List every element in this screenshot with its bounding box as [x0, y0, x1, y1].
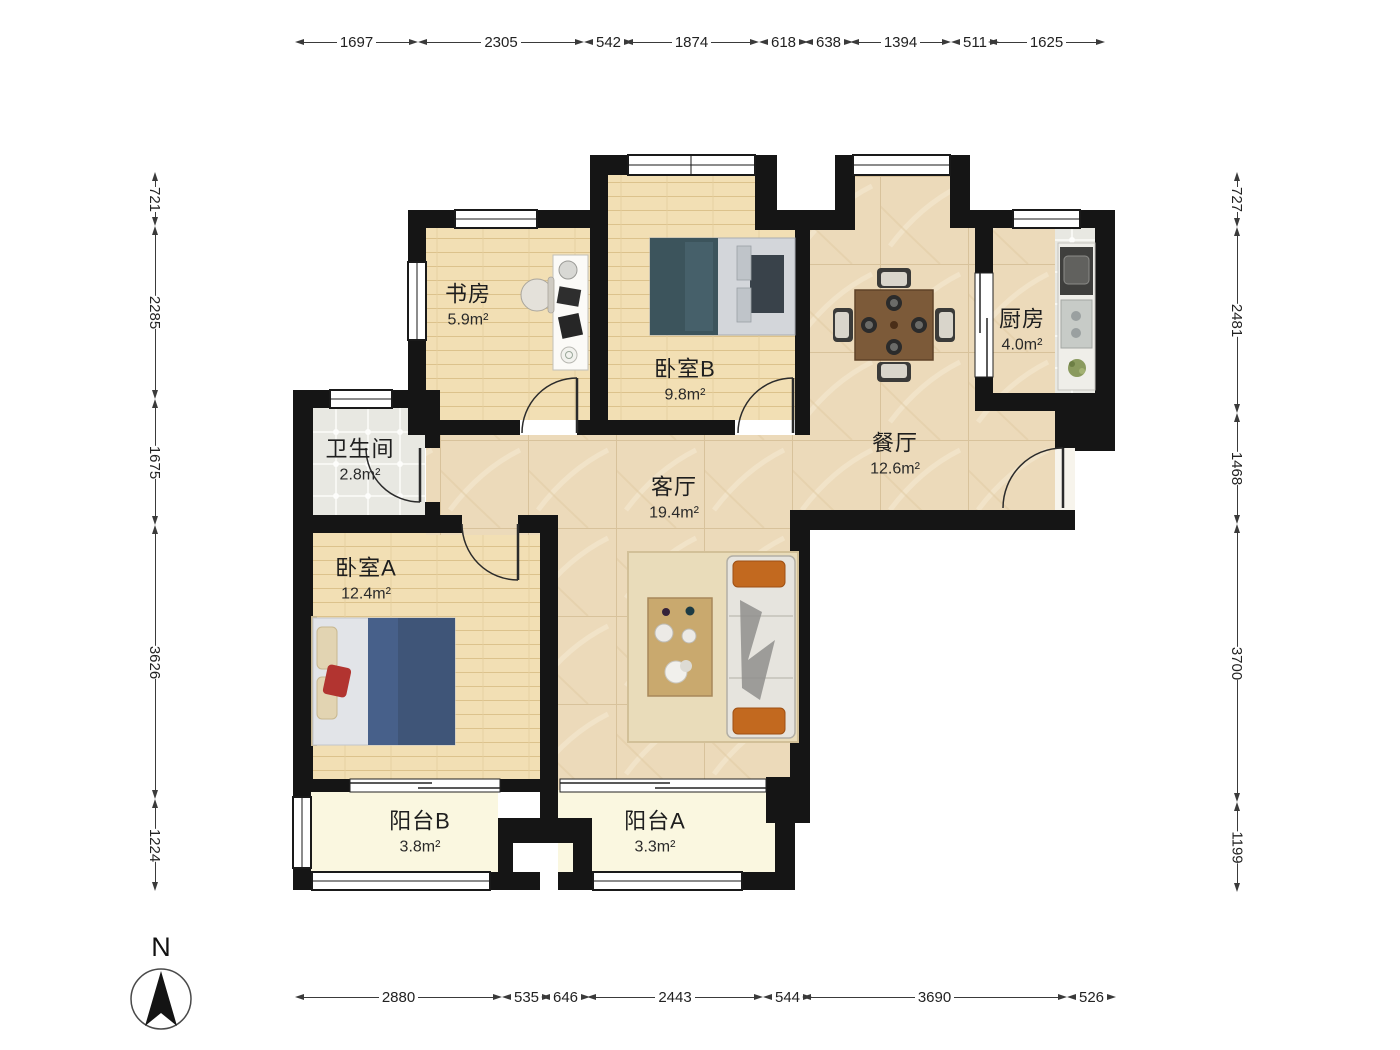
dim-left-2: 1675: [147, 399, 163, 525]
sliding-door: [560, 779, 766, 792]
dim-top-7: 511: [951, 34, 988, 50]
window: [312, 872, 490, 890]
dim-top-5: 638: [804, 34, 850, 50]
dim-bottom-4: 544: [763, 989, 802, 1005]
window: [593, 872, 742, 890]
sofa-icon: [727, 556, 795, 738]
compass-north-label: N: [151, 934, 171, 961]
dim-top-0: 1697: [295, 34, 418, 50]
dim-bottom-0: 2880: [295, 989, 502, 1005]
compass: N: [126, 934, 196, 1033]
window: [628, 155, 755, 175]
floor-plan-canvas: [0, 0, 1400, 1050]
dim-bottom-6: 526: [1067, 989, 1105, 1005]
dim-top-4: 618: [759, 34, 804, 50]
dim-right-1: 2481: [1229, 227, 1245, 413]
window: [1013, 210, 1080, 228]
window: [853, 155, 950, 175]
dim-right-2: 1468: [1229, 413, 1245, 524]
dim-bottom-1: 535: [502, 989, 541, 1005]
desk-icon: [553, 255, 588, 370]
dim-left-4: 1224: [147, 799, 163, 891]
dim-top-2: 542: [584, 34, 624, 50]
dim-right-3: 3700: [1229, 524, 1245, 802]
dim-left-3: 3626: [147, 525, 163, 799]
dim-top-8: 1625: [988, 34, 1105, 50]
dim-top-3: 1874: [624, 34, 759, 50]
dim-top-6: 1394: [850, 34, 951, 50]
floor-plan: 书房 5.9m² 卧室B 9.8m² 厨房 4.0m² 餐厅 12.6m² 卫生…: [0, 0, 1400, 1050]
sliding-door: [350, 779, 500, 792]
window: [455, 210, 537, 228]
dim-left-1: 2285: [147, 226, 163, 399]
bed-icon: [311, 616, 455, 746]
dim-bottom-5: 3690: [802, 989, 1067, 1005]
kitchen-counter-icon: [1058, 243, 1095, 390]
dim-right-0: 727: [1229, 172, 1245, 227]
window: [293, 797, 311, 868]
sliding-door: [975, 273, 993, 377]
dim-bottom-2: 646: [541, 989, 587, 1005]
compass-icon: [126, 963, 196, 1033]
dim-right-4: 1199: [1229, 802, 1245, 892]
window: [330, 390, 392, 408]
coffee-table-icon: [648, 598, 712, 696]
dim-top-1: 2305: [418, 34, 584, 50]
window: [408, 262, 426, 340]
dim-left-0: 721: [147, 172, 163, 226]
dining-floor: [810, 228, 1055, 513]
dim-bottom-3: 2443: [587, 989, 763, 1005]
bed-icon: [650, 238, 795, 335]
balcony-b-floor: [311, 790, 498, 872]
